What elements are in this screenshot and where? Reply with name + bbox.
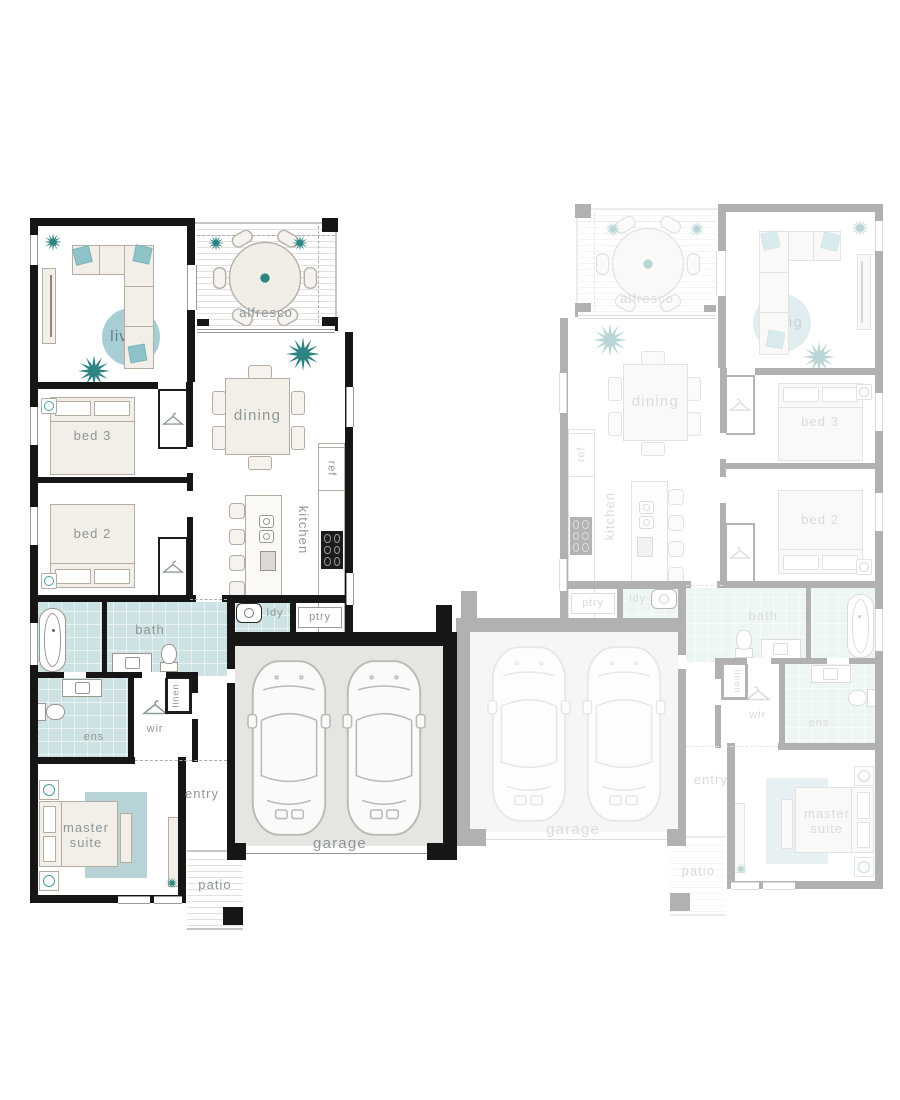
- door-opening: [142, 672, 166, 678]
- wall: [718, 658, 878, 664]
- pillow: [55, 569, 91, 584]
- alfresco-label: alfresco: [591, 292, 703, 307]
- dining-chair: [291, 426, 305, 450]
- ceiling-line-dashed: [135, 760, 227, 761]
- stool: [229, 555, 245, 571]
- bath-toilet: [158, 644, 180, 674]
- alfresco-post: [575, 204, 591, 218]
- door-opening: [227, 669, 235, 683]
- door-opening: [727, 368, 755, 375]
- smoke-detector-icon: [856, 559, 872, 575]
- door-opening: [720, 433, 726, 459]
- stool: [229, 503, 245, 519]
- bed2-robe: [158, 537, 188, 597]
- bed2-label: bed 2: [778, 513, 863, 528]
- master-dresser: [734, 803, 745, 873]
- wall: [178, 757, 186, 903]
- door-opening: [720, 477, 726, 503]
- window: [875, 609, 883, 651]
- ref-label: ref: [576, 435, 589, 475]
- ensuite-label: ens: [799, 717, 839, 730]
- window: [875, 221, 883, 251]
- window: [30, 235, 38, 265]
- sofa-cushion: [766, 330, 786, 350]
- window: [559, 373, 567, 413]
- dining-chair: [248, 456, 272, 470]
- window: [875, 393, 883, 431]
- ceiling-line-dashed: [686, 746, 778, 747]
- pillow: [783, 387, 819, 402]
- cooktop: [321, 531, 343, 569]
- bed2-label: bed 2: [50, 527, 135, 542]
- pillow: [94, 401, 130, 416]
- ensuite-vanity: [62, 679, 102, 697]
- patio-label: patio: [671, 864, 725, 879]
- pantry-label: ptry: [571, 597, 615, 610]
- bathtub: [39, 608, 66, 672]
- smoke-detector-icon: [856, 384, 872, 400]
- stool: [668, 541, 684, 557]
- wall: [718, 204, 883, 212]
- wall: [456, 632, 470, 846]
- bedside-table: [854, 766, 874, 786]
- sofa-cushion: [128, 344, 148, 364]
- alfresco-sliding-doors: [578, 312, 716, 321]
- pantry-label: ptry: [298, 611, 342, 624]
- car: [583, 642, 665, 826]
- laundry-tub: [651, 589, 677, 609]
- pillow: [822, 387, 858, 402]
- bedside-table: [854, 857, 874, 877]
- ceiling-line-dashed: [686, 585, 723, 586]
- tv-unit: [857, 254, 871, 330]
- stool: [668, 489, 684, 505]
- hanger-icon: [162, 559, 184, 575]
- bed3-robe: [158, 389, 188, 449]
- hanger-icon: [729, 397, 751, 413]
- linen-label: linen: [172, 675, 185, 717]
- bed2-bed: [778, 490, 863, 574]
- master-suite-label: mastersuite: [789, 807, 865, 837]
- alfresco-sliding-doors: [197, 326, 335, 335]
- kitchen-island: [631, 481, 668, 586]
- hanger-icon: [162, 411, 184, 427]
- dining-chair: [212, 426, 226, 450]
- alfresco-label: alfresco: [210, 306, 322, 321]
- wall: [806, 588, 811, 658]
- island-sink: [639, 516, 654, 529]
- floorplan-unit-mirrored: living: [453, 181, 883, 921]
- door-opening: [187, 491, 193, 517]
- window: [346, 387, 354, 427]
- smoke-detector-icon: [41, 398, 57, 414]
- bed2-bed: [50, 504, 135, 588]
- window: [559, 559, 567, 591]
- plant-icon: [44, 233, 62, 251]
- bath-toilet: [733, 630, 755, 660]
- laundry-label: ldy: [260, 607, 290, 620]
- alfresco-roof-edge: [576, 208, 578, 316]
- wir-label: wir: [136, 723, 174, 736]
- island-sink: [259, 515, 274, 528]
- dining-label: dining: [623, 393, 688, 410]
- tv-unit: [42, 268, 56, 344]
- step-edge: [686, 836, 726, 838]
- ceiling-line-dashed: [190, 599, 227, 600]
- plant-icon: [593, 323, 627, 357]
- patio-post: [670, 893, 690, 911]
- wall: [560, 581, 686, 589]
- bedside-table: [39, 780, 59, 800]
- window: [30, 623, 38, 665]
- alfresco-post: [322, 218, 338, 232]
- bathtub: [847, 594, 874, 658]
- hanger-icon: [729, 545, 751, 561]
- island-sink: [639, 501, 654, 514]
- dishwasher: [637, 537, 653, 557]
- wall: [227, 632, 457, 646]
- sofa-cushion: [760, 230, 780, 250]
- bed3-label: bed 3: [50, 429, 135, 444]
- patio-edge: [670, 914, 726, 916]
- window: [118, 896, 150, 904]
- wir-label: wir: [739, 709, 777, 722]
- pillow: [94, 569, 130, 584]
- wall-pier: [667, 829, 686, 846]
- wall: [290, 595, 296, 632]
- smoke-detector-icon: [41, 573, 57, 589]
- ensuite-toilet: [36, 701, 66, 723]
- window: [346, 573, 354, 605]
- dining-chair: [687, 377, 701, 401]
- wall: [779, 664, 785, 748]
- dining-chair: [687, 412, 701, 436]
- entry-label: entry: [689, 773, 733, 788]
- bedside-table: [39, 871, 59, 891]
- alfresco-roof-edge: [335, 222, 337, 330]
- car: [343, 656, 425, 840]
- dining-chair: [248, 365, 272, 379]
- wall-pier: [436, 605, 452, 633]
- bath-vanity: [112, 653, 152, 673]
- dining-chair: [641, 351, 665, 365]
- dining-chair: [291, 391, 305, 415]
- wall: [102, 602, 107, 672]
- wall-pier: [456, 829, 486, 846]
- dining-chair: [608, 412, 622, 436]
- dining-label: dining: [225, 407, 290, 424]
- sliding-door: [187, 265, 197, 310]
- wall: [727, 743, 735, 889]
- bath-label: bath: [120, 623, 180, 638]
- door-opening: [827, 658, 849, 664]
- patio-label: patio: [188, 878, 242, 893]
- wall: [725, 463, 878, 469]
- dining-chair: [608, 377, 622, 401]
- car: [248, 656, 330, 840]
- bath-label: bath: [733, 609, 793, 624]
- window: [731, 882, 759, 890]
- ref-label: ref: [325, 449, 338, 489]
- wall: [875, 204, 883, 889]
- wall: [456, 618, 686, 632]
- window: [154, 896, 182, 904]
- cooktop: [570, 517, 592, 555]
- kitchen-label: kitchen: [603, 471, 619, 561]
- window: [875, 493, 883, 531]
- wall: [128, 678, 134, 762]
- wall: [35, 757, 135, 764]
- wall: [30, 218, 38, 903]
- laundry-tub: [236, 603, 262, 623]
- plant-icon: [851, 219, 869, 237]
- door-opening: [747, 658, 771, 664]
- door-opening: [192, 693, 198, 719]
- bed3-label: bed 3: [778, 415, 863, 430]
- wall: [35, 477, 188, 483]
- wall: [30, 218, 195, 226]
- wall-pier: [227, 843, 246, 860]
- stool: [229, 529, 245, 545]
- step-edge: [187, 850, 227, 852]
- floorplan-unit: living: [30, 195, 460, 935]
- laundry-label: ldy: [623, 593, 653, 606]
- kitchen-label: kitchen: [294, 485, 310, 575]
- window: [763, 882, 795, 890]
- patio-post: [223, 907, 243, 925]
- garage-label: garage: [508, 821, 638, 838]
- pillow: [783, 555, 819, 570]
- wall: [778, 743, 878, 750]
- pillow: [55, 401, 91, 416]
- sliding-door: [716, 251, 726, 296]
- sofa-cushion: [132, 244, 152, 264]
- linen-label: linen: [729, 661, 742, 703]
- window: [30, 407, 38, 445]
- dishwasher: [260, 551, 276, 571]
- door-opening: [678, 655, 686, 669]
- bed3-robe: [725, 375, 755, 435]
- door-opening: [64, 672, 86, 678]
- bed2-robe: [725, 523, 755, 583]
- entry-label: entry: [180, 787, 224, 802]
- pillow: [822, 555, 858, 570]
- ensuite-label: ens: [74, 731, 114, 744]
- floorplan-canvas: living: [0, 0, 900, 1100]
- kitchen-island: [245, 495, 282, 600]
- door-opening: [158, 382, 186, 389]
- stool: [668, 515, 684, 531]
- car: [488, 642, 570, 826]
- garage-label: garage: [275, 835, 405, 852]
- ensuite-toilet: [847, 687, 877, 709]
- door-opening: [715, 679, 721, 705]
- dining-chair: [212, 391, 226, 415]
- wall-pier: [461, 591, 477, 619]
- master-suite-label: mastersuite: [48, 821, 124, 851]
- window: [30, 507, 38, 545]
- dining-chair: [641, 442, 665, 456]
- bath-vanity: [761, 639, 801, 659]
- door-opening: [187, 447, 193, 473]
- hanger-icon: [745, 684, 771, 703]
- patio-edge: [187, 928, 243, 930]
- plant-icon: [286, 337, 320, 371]
- ensuite-vanity: [811, 665, 851, 683]
- island-sink: [259, 530, 274, 543]
